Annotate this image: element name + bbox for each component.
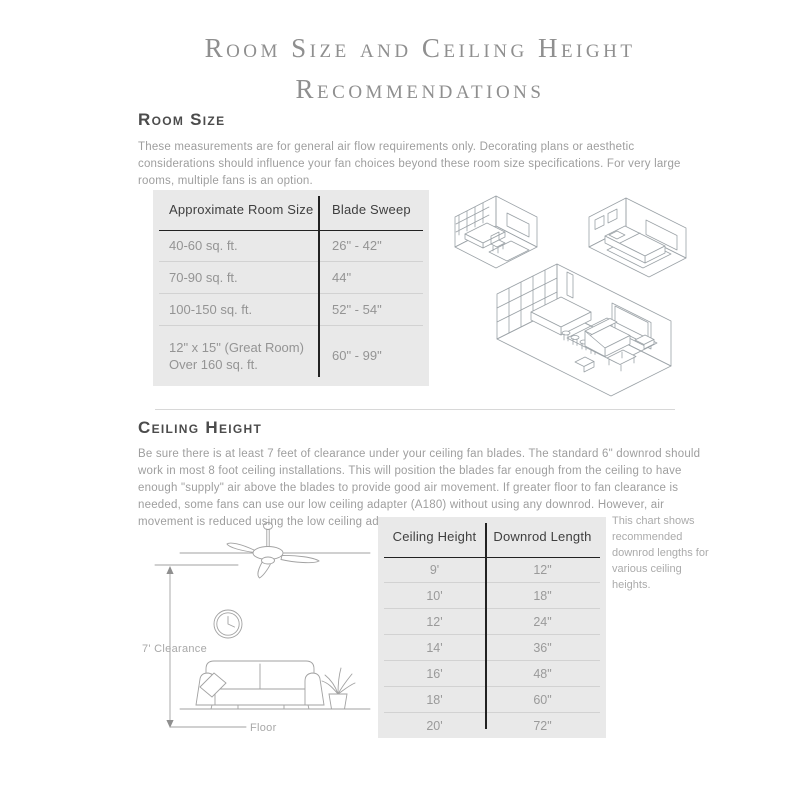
table-cell: 52" - 54" [318, 293, 423, 325]
floor-label: Floor [250, 722, 277, 734]
wall-clock-drawing [214, 610, 242, 638]
sofa-drawing [196, 661, 324, 709]
downrod-chart-note: This chart shows recommended downrod len… [612, 513, 709, 593]
table-row: 12'24" [384, 609, 600, 635]
table-cell: 16' [384, 661, 485, 687]
column-header-ceiling-height: Ceiling Height [384, 517, 485, 557]
page-title-line1: Room Size and Ceiling Height [130, 28, 710, 69]
table-row: 70-90 sq. ft.44" [159, 262, 423, 294]
room-size-table: Approximate Room Size Blade Sweep 40-60 … [153, 190, 429, 386]
room-size-heading: Room Size [138, 110, 225, 130]
table-cell: 40-60 sq. ft. [159, 230, 318, 262]
table-cell: 14' [384, 635, 485, 661]
clearance-illustration: 7' Clearance Floor [138, 517, 378, 739]
ceiling-fan-drawing [227, 523, 319, 579]
room-size-description: These measurements are for general air f… [138, 139, 710, 190]
table-cell: 10' [384, 583, 485, 609]
table-row: 12" x 15" (Great Room) Over 160 sq. ft.6… [159, 325, 423, 386]
table-row: 10'18" [384, 583, 600, 609]
table-cell: 72" [485, 713, 600, 738]
table-cell: 44" [318, 262, 423, 294]
table-cell: 100-150 sq. ft. [159, 293, 318, 325]
table-cell: 12" [485, 557, 600, 583]
table-row: 18'60" [384, 687, 600, 713]
table-row: 20'72" [384, 713, 600, 738]
section-divider [155, 409, 675, 410]
potted-plant-drawing [322, 668, 355, 709]
table-cell: 24" [485, 609, 600, 635]
page-title: Room Size and Ceiling Height Recommendat… [130, 28, 710, 110]
clearance-label: 7' Clearance [142, 643, 207, 655]
table-cell: 60" [485, 687, 600, 713]
table-cell: 36" [485, 635, 600, 661]
table-column-divider [318, 196, 320, 377]
table-cell: 9' [384, 557, 485, 583]
column-header-downrod-length: Downrod Length [485, 517, 600, 557]
office-room-drawing [455, 196, 537, 268]
table-cell: 18' [384, 687, 485, 713]
table-cell: 12' [384, 609, 485, 635]
table-row: 40-60 sq. ft.26" - 42" [159, 230, 423, 262]
isometric-rooms-illustration [438, 186, 702, 398]
ceiling-height-table: Ceiling Height Downrod Length 9'12"10'18… [378, 517, 606, 738]
table-cell: 26" - 42" [318, 230, 423, 262]
table-cell: 20' [384, 713, 485, 738]
table-row: 100-150 sq. ft.52" - 54" [159, 293, 423, 325]
table-cell: 70-90 sq. ft. [159, 262, 318, 294]
table-row: 16'48" [384, 661, 600, 687]
bedroom-drawing [589, 198, 686, 277]
table-header-row: Approximate Room Size Blade Sweep [159, 190, 423, 230]
ceiling-height-heading: Ceiling Height [138, 418, 262, 438]
table-row: 14'36" [384, 635, 600, 661]
page: Room Size and Ceiling Height Recommendat… [0, 0, 800, 800]
column-header-blade-sweep: Blade Sweep [318, 190, 423, 230]
table-row: 9'12" [384, 557, 600, 583]
living-room-drawing [497, 264, 671, 396]
table-header-row: Ceiling Height Downrod Length [384, 517, 600, 557]
page-title-line2: Recommendations [130, 69, 710, 110]
table-cell: 60" - 99" [318, 325, 423, 386]
table-cell: 18" [485, 583, 600, 609]
column-header-room-size: Approximate Room Size [159, 190, 318, 230]
table-column-divider [485, 523, 487, 729]
table-cell: 48" [485, 661, 600, 687]
table-cell: 12" x 15" (Great Room) Over 160 sq. ft. [159, 325, 318, 386]
